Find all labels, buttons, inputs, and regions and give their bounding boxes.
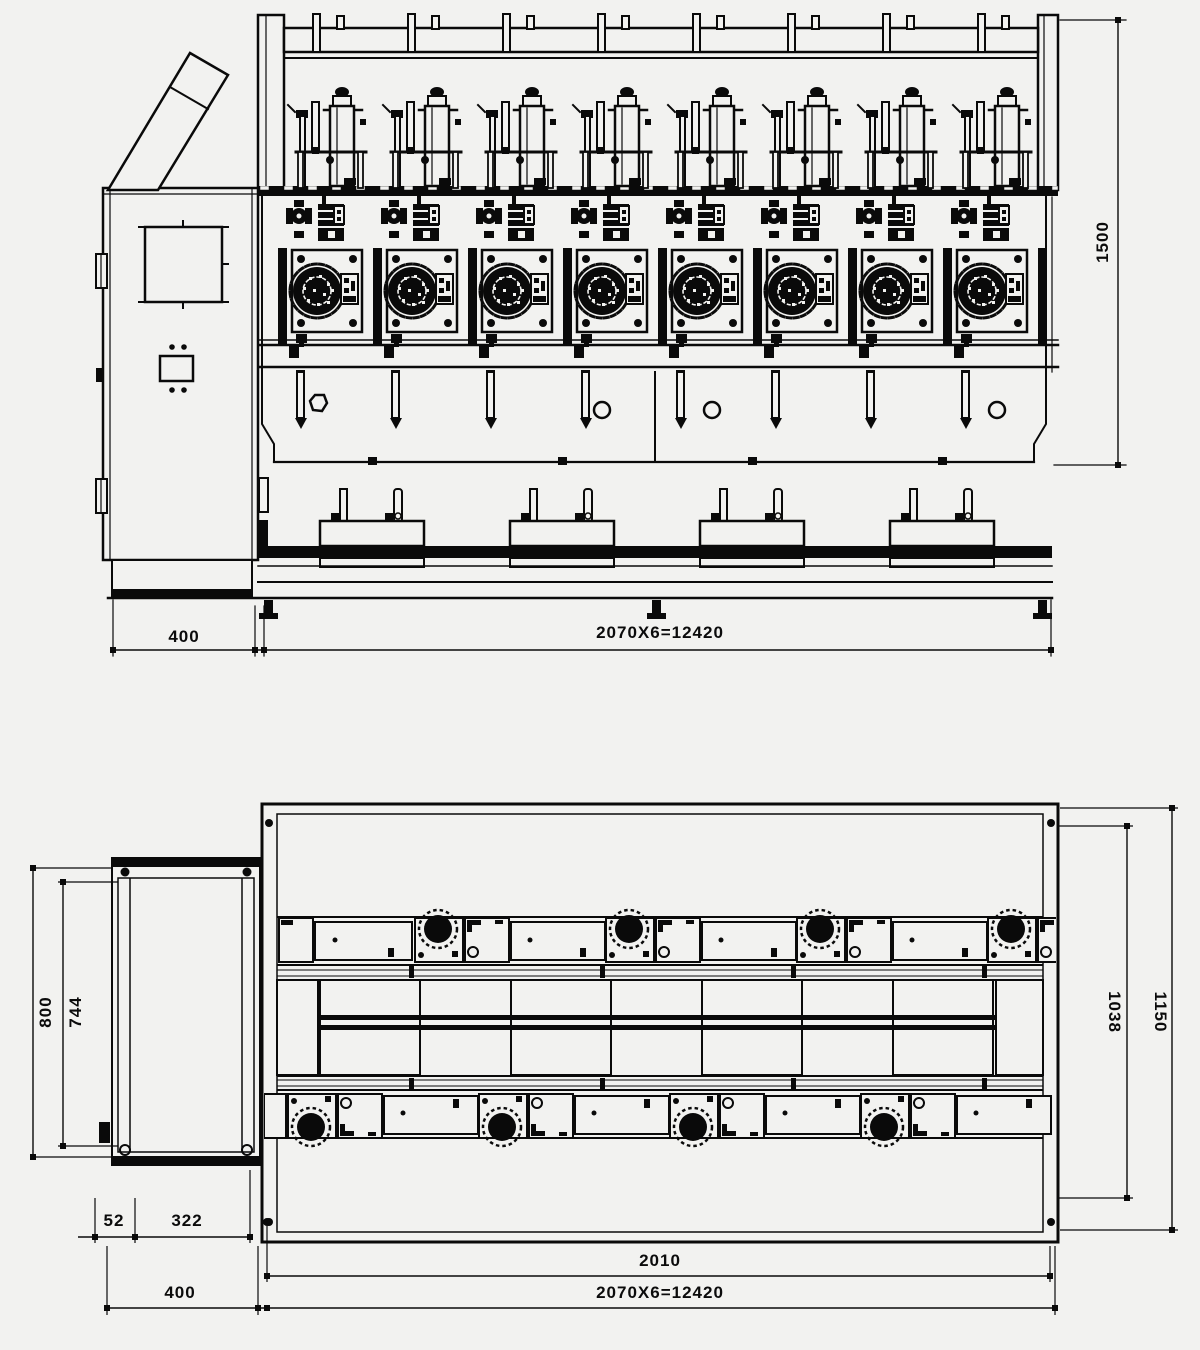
plan-dim-inner-depth: 1038: [1104, 991, 1124, 1033]
plan-dim-inner-height: 744: [66, 996, 86, 1027]
front-view-drawing: [96, 14, 1126, 656]
plan-dim-body-width: 2010: [639, 1251, 681, 1271]
plan-dim-total-length: 2070X6=12420: [596, 1283, 724, 1303]
plan-dim-cabinet-width: 322: [171, 1211, 202, 1231]
plan-view-drawing: [30, 804, 1178, 1315]
front-dim-total-length: 2070X6=12420: [596, 623, 724, 643]
front-dim-cabinet-width: 400: [168, 627, 199, 647]
machine-drawing-svg: [0, 0, 1200, 1350]
plan-cabinet: [99, 858, 260, 1165]
plan-dim-offset: 52: [104, 1211, 125, 1231]
cabinet-display-panel: [139, 221, 228, 308]
plan-dim-outer-depth: 1150: [1150, 992, 1170, 1033]
feed-chute: [108, 53, 228, 190]
plan-dim-cabinet-depth: 400: [164, 1283, 195, 1303]
plan-dim-outer-height: 800: [36, 996, 56, 1027]
front-dim-height: 1500: [1093, 221, 1113, 263]
technical-drawing-canvas: 400 2070X6=12420 1500 52 322 400 2010 20…: [0, 0, 1200, 1350]
